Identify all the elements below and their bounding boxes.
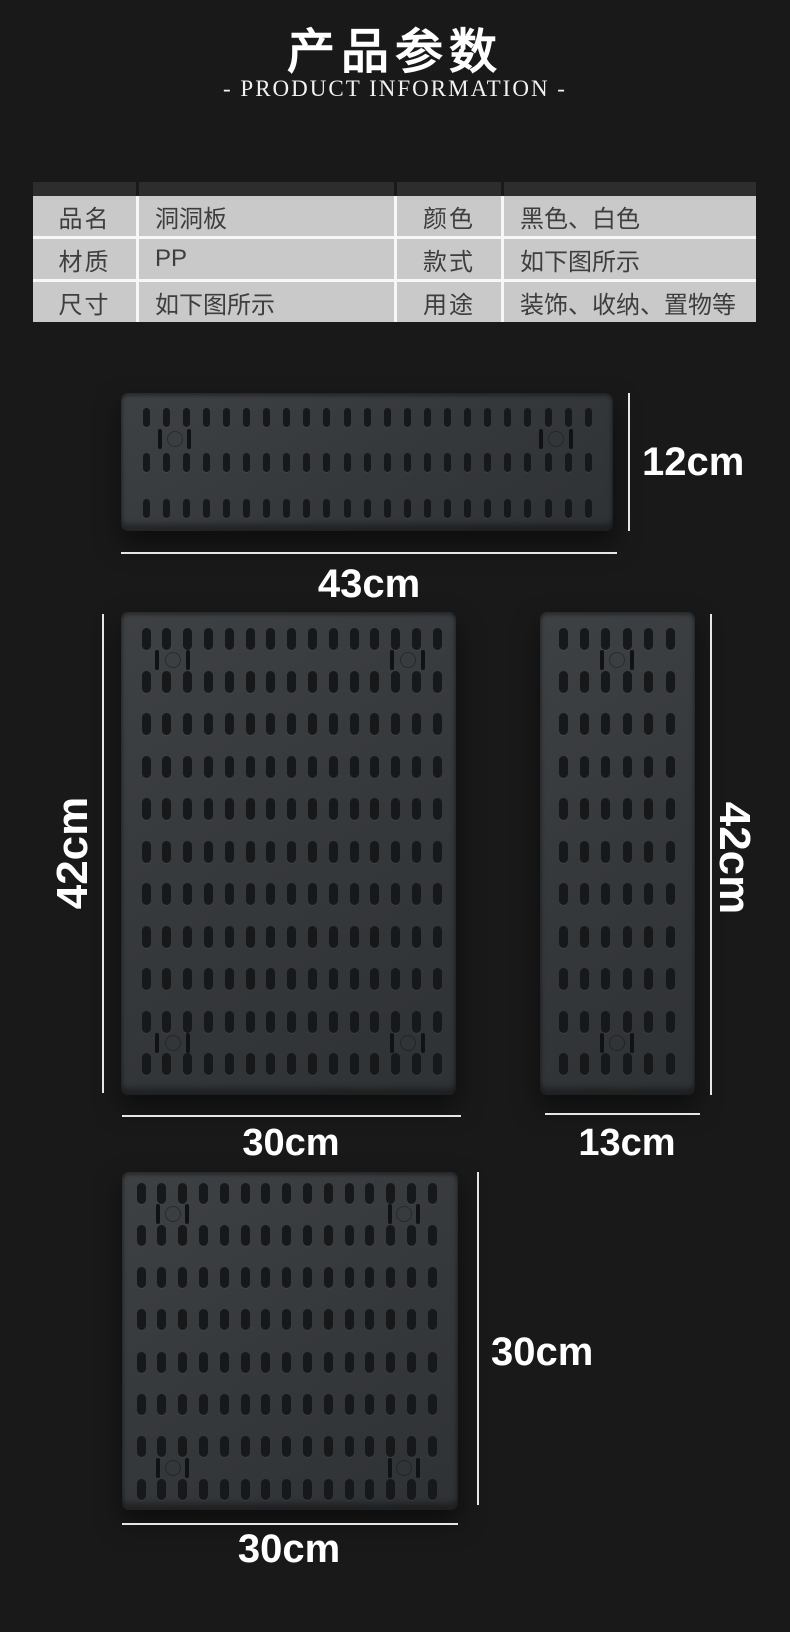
peg-slot <box>601 628 610 650</box>
peg-slot <box>412 1053 421 1075</box>
peg-slot <box>559 671 568 693</box>
mount-hole-circle <box>167 431 183 447</box>
peg-slot <box>199 1352 208 1373</box>
peg-slot <box>601 1053 610 1075</box>
shadow-segment <box>33 182 136 196</box>
peg-slot <box>183 968 192 990</box>
mount-slot <box>185 1204 189 1224</box>
peg-slot <box>350 968 359 990</box>
peg-slot <box>324 1352 333 1373</box>
peg-slot <box>282 1436 291 1457</box>
peg-slot <box>308 883 317 905</box>
peg-slot <box>162 883 171 905</box>
peg-slot <box>199 1309 208 1330</box>
peg-slot <box>142 926 151 948</box>
page-title: 产品参数 <box>0 12 790 82</box>
peg-slot <box>370 1053 379 1075</box>
dimension-label: 30cm <box>491 1332 593 1372</box>
peg-slot <box>142 671 151 693</box>
peg-slot <box>644 1053 653 1075</box>
peg-slot <box>225 756 234 778</box>
peg-slot <box>162 1011 171 1033</box>
peg-slot <box>183 453 190 472</box>
peg-slot <box>391 926 400 948</box>
peg-slot <box>433 1053 442 1075</box>
peg-slot <box>204 756 213 778</box>
peg-slot <box>261 1479 270 1500</box>
peg-slot <box>183 1011 192 1033</box>
peg-slot <box>504 499 511 518</box>
peg-slot <box>601 841 610 863</box>
peg-slot <box>559 1011 568 1033</box>
peg-slot <box>601 926 610 948</box>
peg-slot <box>241 1394 250 1415</box>
peg-slot <box>524 453 531 472</box>
peg-slot <box>143 453 150 472</box>
peg-slot <box>370 756 379 778</box>
peg-slot <box>157 1225 166 1246</box>
peg-slot <box>178 1436 187 1457</box>
peg-slot <box>204 841 213 863</box>
peg-slot <box>565 453 572 472</box>
pegboard-43x12-image <box>121 393 613 531</box>
mount-slot <box>186 1033 190 1053</box>
spec-value-style: 如下图所示 <box>504 239 756 279</box>
peg-slot <box>370 968 379 990</box>
peg-slot <box>345 1225 354 1246</box>
peg-slot <box>565 408 572 427</box>
peg-slot <box>225 628 234 650</box>
peg-slot <box>412 1011 421 1033</box>
mount-slot <box>388 1204 392 1224</box>
pegboard-13x42-image <box>540 612 695 1095</box>
peg-slot <box>243 453 250 472</box>
peg-slot <box>287 1053 296 1075</box>
peg-slot <box>559 628 568 650</box>
peg-slot <box>266 713 275 735</box>
peg-slot <box>345 1183 354 1204</box>
peg-slot <box>559 841 568 863</box>
peg-slot <box>585 408 592 427</box>
mount-hole-circle <box>165 1460 181 1476</box>
dimension-line <box>628 393 630 531</box>
peg-slot <box>623 968 632 990</box>
peg-slot <box>364 453 371 472</box>
peg-slot <box>407 1394 416 1415</box>
dimension-line <box>102 614 104 1093</box>
peg-slot <box>162 841 171 863</box>
peg-slot <box>666 798 675 820</box>
peg-slot <box>261 1352 270 1373</box>
peg-slot <box>323 499 330 518</box>
peg-slot <box>391 1053 400 1075</box>
peg-slot <box>666 926 675 948</box>
peg-slot <box>243 499 250 518</box>
peg-slot <box>178 1183 187 1204</box>
spec-label-product-name: 品名 <box>33 196 136 236</box>
peg-slot <box>303 408 310 427</box>
peg-slot <box>225 798 234 820</box>
dimension-line <box>477 1172 479 1505</box>
peg-slot <box>559 926 568 948</box>
dimension-label: 42cm <box>712 802 756 915</box>
peg-slot <box>464 453 471 472</box>
peg-slot <box>287 968 296 990</box>
peg-slot <box>204 1011 213 1033</box>
peg-slot <box>329 1053 338 1075</box>
mount-slot <box>416 1204 420 1224</box>
peg-slot <box>308 671 317 693</box>
peg-slot <box>142 756 151 778</box>
peg-slot <box>303 1436 312 1457</box>
peg-slot <box>391 841 400 863</box>
peg-slot <box>580 968 589 990</box>
peg-slot <box>142 968 151 990</box>
peg-slot <box>183 798 192 820</box>
product-information-page: 产品参数 - PRODUCT INFORMATION - 品名 洞洞板 颜色 黑… <box>0 0 790 1632</box>
peg-slot <box>329 926 338 948</box>
peg-slot <box>241 1479 250 1500</box>
peg-slot <box>345 1309 354 1330</box>
peg-slot <box>350 1011 359 1033</box>
peg-slot <box>308 1011 317 1033</box>
peg-slot <box>407 1225 416 1246</box>
mount-slot <box>155 1033 159 1053</box>
peg-slot <box>384 453 391 472</box>
peg-slot <box>433 713 442 735</box>
peg-slot <box>666 1053 675 1075</box>
peg-slot <box>484 499 491 518</box>
mount-hole-circle <box>400 652 416 668</box>
peg-slot <box>308 968 317 990</box>
peg-slot <box>157 1394 166 1415</box>
peg-slot <box>444 453 451 472</box>
peg-slot <box>303 499 310 518</box>
peg-slot <box>324 1183 333 1204</box>
spec-table-top-shadow <box>33 182 756 196</box>
mount-slot <box>185 1458 189 1478</box>
peg-slot <box>386 1267 395 1288</box>
mount-slot <box>600 650 604 670</box>
peg-slot <box>623 671 632 693</box>
peg-slot <box>433 883 442 905</box>
peg-slot <box>287 883 296 905</box>
peg-slot <box>246 883 255 905</box>
shadow-segment <box>504 182 756 196</box>
peg-slot <box>350 883 359 905</box>
mount-hole-circle <box>396 1460 412 1476</box>
peg-slot <box>329 1011 338 1033</box>
peg-slot <box>157 1309 166 1330</box>
peg-slot <box>241 1183 250 1204</box>
peg-slot <box>142 841 151 863</box>
peg-slot <box>345 1267 354 1288</box>
peg-slot <box>241 1267 250 1288</box>
spec-label-material: 材质 <box>33 239 136 279</box>
mount-slot <box>416 1458 420 1478</box>
peg-slot <box>391 1011 400 1033</box>
peg-slot <box>323 453 330 472</box>
peg-slot <box>433 628 442 650</box>
peg-slot <box>565 499 572 518</box>
peg-slot <box>545 453 552 472</box>
mount-slot <box>186 650 190 670</box>
peg-slot <box>559 756 568 778</box>
peg-slot <box>391 628 400 650</box>
peg-slot <box>601 1011 610 1033</box>
peg-slot <box>585 499 592 518</box>
peg-slot <box>223 408 230 427</box>
dimension-line <box>122 1523 458 1525</box>
peg-slot <box>246 1053 255 1075</box>
peg-slot <box>580 671 589 693</box>
peg-slot <box>407 1479 416 1500</box>
peg-slot <box>601 713 610 735</box>
peg-slot <box>308 841 317 863</box>
peg-slot <box>580 1053 589 1075</box>
peg-slot <box>225 968 234 990</box>
peg-slot <box>163 408 170 427</box>
peg-slot <box>308 926 317 948</box>
peg-slot <box>329 628 338 650</box>
peg-slot <box>524 408 531 427</box>
peg-slot <box>412 968 421 990</box>
peg-slot <box>623 1011 632 1033</box>
peg-slot <box>350 798 359 820</box>
mount-hole-circle <box>165 1206 181 1222</box>
peg-slot <box>428 1267 437 1288</box>
peg-slot <box>282 1309 291 1330</box>
peg-slot <box>666 883 675 905</box>
peg-slot <box>220 1225 229 1246</box>
peg-slot <box>433 798 442 820</box>
peg-slot <box>157 1436 166 1457</box>
peg-slot <box>365 1309 374 1330</box>
peg-slot <box>308 1053 317 1075</box>
peg-slot <box>644 713 653 735</box>
peg-slot <box>444 408 451 427</box>
peg-slot <box>183 671 192 693</box>
peg-slot <box>246 756 255 778</box>
mount-slot <box>390 1033 394 1053</box>
peg-slot <box>261 1309 270 1330</box>
peg-slot <box>365 1267 374 1288</box>
peg-slot <box>225 883 234 905</box>
peg-slot <box>162 628 171 650</box>
peg-slot <box>266 883 275 905</box>
peg-slot <box>666 671 675 693</box>
peg-slot <box>329 968 338 990</box>
peg-slot <box>350 713 359 735</box>
peg-slot <box>424 408 431 427</box>
peg-slot <box>407 1436 416 1457</box>
peg-slot <box>623 628 632 650</box>
peg-slot <box>137 1183 146 1204</box>
peg-slot <box>142 713 151 735</box>
peg-slot <box>303 1267 312 1288</box>
peg-slot <box>266 968 275 990</box>
peg-slot <box>623 1053 632 1075</box>
peg-slot <box>203 408 210 427</box>
mount-slot <box>600 1033 604 1053</box>
peg-slot <box>246 1011 255 1033</box>
peg-slot <box>183 756 192 778</box>
mount-hole-circle <box>548 431 564 447</box>
peg-slot <box>580 841 589 863</box>
peg-slot <box>162 756 171 778</box>
peg-slot <box>329 713 338 735</box>
peg-slot <box>220 1479 229 1500</box>
peg-slot <box>324 1225 333 1246</box>
mount-hole-circle <box>396 1206 412 1222</box>
dimension-line <box>122 1115 461 1117</box>
peg-slot <box>225 713 234 735</box>
peg-slot <box>391 883 400 905</box>
peg-slot <box>287 798 296 820</box>
peg-slot <box>162 798 171 820</box>
peg-slot <box>199 1479 208 1500</box>
peg-slot <box>241 1225 250 1246</box>
peg-slot <box>178 1309 187 1330</box>
peg-slot <box>137 1436 146 1457</box>
peg-slot <box>162 713 171 735</box>
dimension-label: 13cm <box>578 1124 675 1162</box>
peg-slot <box>142 628 151 650</box>
mount-slot <box>187 429 191 449</box>
peg-slot <box>204 713 213 735</box>
peg-slot <box>287 713 296 735</box>
peg-slot <box>444 499 451 518</box>
peg-slot <box>644 968 653 990</box>
peg-slot <box>137 1394 146 1415</box>
peg-slot <box>199 1183 208 1204</box>
peg-slot <box>220 1267 229 1288</box>
peg-slot <box>644 841 653 863</box>
peg-slot <box>559 713 568 735</box>
peg-slot <box>220 1352 229 1373</box>
peg-slot <box>287 841 296 863</box>
peg-slot <box>559 1053 568 1075</box>
dimension-label: 43cm <box>318 564 420 604</box>
peg-slot <box>433 926 442 948</box>
peg-slot <box>623 713 632 735</box>
peg-slot <box>644 628 653 650</box>
peg-slot <box>178 1394 187 1415</box>
peg-slot <box>623 841 632 863</box>
peg-slot <box>282 1225 291 1246</box>
peg-slot <box>370 1011 379 1033</box>
peg-slot <box>386 1352 395 1373</box>
shadow-segment <box>139 182 394 196</box>
peg-slot <box>404 499 411 518</box>
mount-hole-circle <box>165 652 181 668</box>
mount-slot <box>156 1204 160 1224</box>
peg-slot <box>246 926 255 948</box>
peg-slot <box>225 841 234 863</box>
mount-slot <box>630 650 634 670</box>
peg-slot <box>407 1352 416 1373</box>
peg-slot <box>345 1352 354 1373</box>
peg-slot <box>370 883 379 905</box>
peg-slot <box>324 1267 333 1288</box>
peg-slot <box>370 628 379 650</box>
peg-slot <box>137 1225 146 1246</box>
peg-slot <box>204 883 213 905</box>
mount-slot <box>539 429 543 449</box>
peg-slot <box>324 1436 333 1457</box>
peg-slot <box>162 1053 171 1075</box>
peg-slot <box>601 798 610 820</box>
peg-slot <box>412 756 421 778</box>
peg-slot <box>391 756 400 778</box>
peg-slot <box>433 1011 442 1033</box>
peg-slot <box>203 499 210 518</box>
peg-slot <box>199 1225 208 1246</box>
peg-slot <box>183 1053 192 1075</box>
peg-slot <box>601 883 610 905</box>
peg-slot <box>282 1394 291 1415</box>
peg-slot <box>287 628 296 650</box>
peg-slot <box>303 1309 312 1330</box>
spec-value-material: PP <box>139 239 394 279</box>
peg-slot <box>137 1309 146 1330</box>
peg-slot <box>137 1267 146 1288</box>
peg-slot <box>344 408 351 427</box>
dimension-label: 30cm <box>238 1529 340 1569</box>
peg-slot <box>183 926 192 948</box>
peg-slot <box>246 968 255 990</box>
peg-slot <box>287 1011 296 1033</box>
mount-slot <box>630 1033 634 1053</box>
peg-slot <box>428 1352 437 1373</box>
peg-slot <box>391 798 400 820</box>
peg-slot <box>350 926 359 948</box>
peg-slot <box>644 798 653 820</box>
peg-slot <box>644 1011 653 1033</box>
peg-slot <box>345 1479 354 1500</box>
peg-slot <box>484 453 491 472</box>
peg-slot <box>266 798 275 820</box>
peg-slot <box>580 926 589 948</box>
peg-slot <box>412 798 421 820</box>
peg-slot <box>324 1479 333 1500</box>
peg-slot <box>412 841 421 863</box>
peg-slot <box>282 1479 291 1500</box>
peg-slot <box>183 841 192 863</box>
mount-slot <box>390 650 394 670</box>
peg-slot <box>178 1225 187 1246</box>
peg-slot <box>303 1352 312 1373</box>
peg-slot <box>261 1225 270 1246</box>
peg-slot <box>428 1436 437 1457</box>
peg-slot <box>220 1183 229 1204</box>
peg-slot <box>204 628 213 650</box>
peg-slot <box>666 628 675 650</box>
peg-slot <box>644 883 653 905</box>
peg-slot <box>329 671 338 693</box>
peg-slot <box>428 1183 437 1204</box>
peg-slot <box>585 453 592 472</box>
peg-slot <box>580 628 589 650</box>
peg-slot <box>199 1394 208 1415</box>
peg-slot <box>283 408 290 427</box>
dimension-label: 12cm <box>642 442 744 482</box>
spec-value-product-name: 洞洞板 <box>139 196 394 236</box>
peg-slot <box>386 1479 395 1500</box>
mount-hole-circle <box>165 1035 181 1051</box>
dimension-label: 42cm <box>51 797 95 910</box>
peg-slot <box>350 671 359 693</box>
